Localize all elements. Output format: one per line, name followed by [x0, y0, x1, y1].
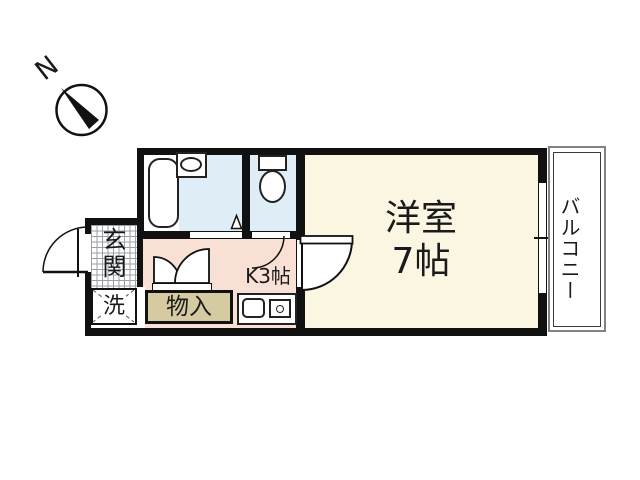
- western-room-size: 7帖: [355, 240, 487, 283]
- western-room-label: 洋室 7帖: [355, 197, 487, 283]
- plan-overlay: [0, 0, 640, 480]
- washer-label-text: 洗: [102, 296, 126, 318]
- western-room-name: 洋室: [355, 197, 487, 240]
- floor-plan: 物入 N 玄関 洗 K3帖 洋室 7帖 バルコニー: [0, 0, 640, 480]
- kitchen-label: K3帖: [238, 265, 298, 287]
- entrance-label: 玄関: [100, 227, 124, 281]
- balcony-label: バルコニー: [558, 196, 580, 308]
- room-door-leaf: [301, 236, 353, 244]
- room-door-swing: [302, 240, 352, 290]
- washer-label: 洗: [91, 288, 137, 325]
- entrance-door-arc: [43, 227, 88, 272]
- closet-door-right: [175, 249, 209, 283]
- bath-door-triangle-icon: [232, 216, 242, 229]
